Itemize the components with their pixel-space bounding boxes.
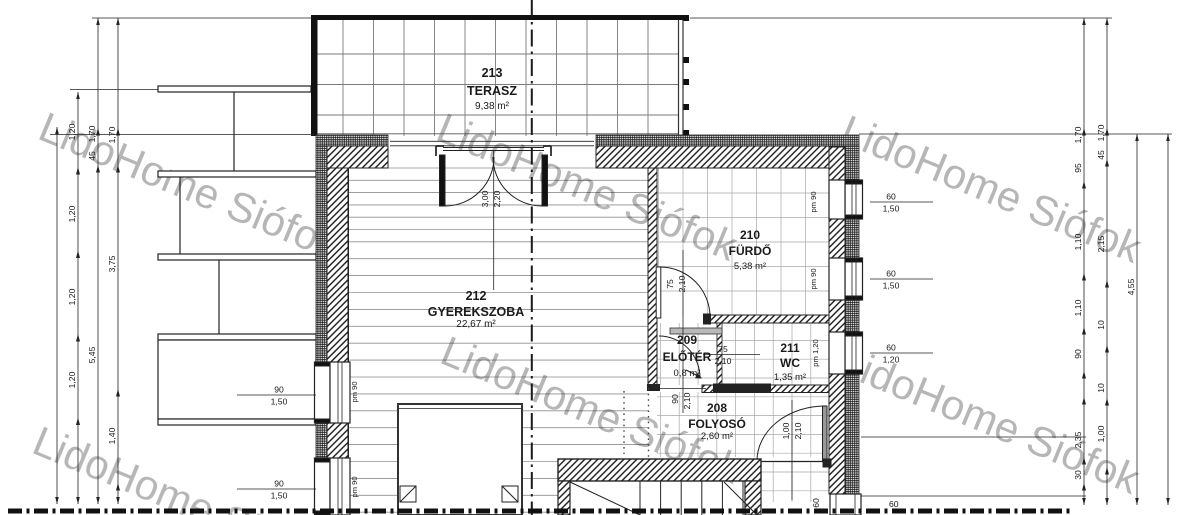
svg-text:90: 90 (1073, 349, 1083, 359)
svg-text:2,10: 2,10 (715, 356, 732, 366)
svg-text:2,10: 2,10 (677, 275, 687, 292)
svg-text:9,38 m²: 9,38 m² (475, 101, 510, 112)
svg-text:2,10: 2,10 (793, 422, 803, 439)
svg-text:1,20: 1,20 (883, 355, 900, 365)
svg-text:90: 90 (274, 479, 284, 489)
svg-text:209: 209 (677, 333, 697, 347)
svg-text:90: 90 (670, 394, 680, 404)
svg-text:TERASZ: TERASZ (467, 84, 517, 98)
svg-text:1,35 m²: 1,35 m² (774, 372, 806, 383)
svg-text:75: 75 (718, 344, 728, 354)
svg-text:1,70: 1,70 (1073, 126, 1083, 143)
svg-text:213: 213 (482, 66, 503, 80)
svg-text:1,70: 1,70 (107, 126, 117, 143)
svg-text:3,00: 3,00 (480, 190, 490, 207)
svg-text:1,00: 1,00 (781, 422, 791, 439)
svg-text:208: 208 (707, 401, 727, 415)
svg-text:1,50: 1,50 (271, 491, 288, 501)
svg-text:2,15: 2,15 (1096, 235, 1106, 252)
svg-text:FÜRDŐ: FÜRDŐ (729, 243, 772, 258)
svg-text:45: 45 (1096, 150, 1106, 160)
svg-text:2,10: 2,10 (682, 392, 692, 409)
svg-text:1,50: 1,50 (271, 397, 288, 407)
svg-text:1,10: 1,10 (1073, 299, 1083, 316)
svg-text:1,70: 1,70 (87, 125, 97, 142)
svg-text:3,75: 3,75 (107, 255, 117, 272)
svg-text:4,55: 4,55 (1126, 278, 1136, 295)
svg-text:1,20: 1,20 (67, 371, 77, 388)
svg-text:pm 90: pm 90 (809, 268, 818, 289)
svg-text:5,38 m²: 5,38 m² (734, 261, 766, 272)
svg-text:60: 60 (889, 499, 899, 509)
svg-text:1,50: 1,50 (883, 281, 900, 291)
svg-text:10: 10 (1096, 320, 1106, 330)
svg-text:1,50: 1,50 (883, 204, 900, 214)
svg-text:90: 90 (274, 385, 284, 395)
svg-text:75: 75 (665, 279, 675, 289)
svg-text:212: 212 (466, 289, 487, 303)
svg-text:2,35: 2,35 (1073, 431, 1083, 448)
svg-text:95: 95 (1073, 163, 1083, 173)
svg-text:30: 30 (1073, 470, 1083, 480)
svg-text:pm 90: pm 90 (350, 381, 359, 402)
svg-text:60: 60 (886, 192, 896, 202)
svg-text:pm 90: pm 90 (809, 191, 818, 212)
svg-text:10: 10 (1096, 383, 1106, 393)
svg-text:ELŐTÉR: ELŐTÉR (663, 349, 712, 364)
svg-text:1,10: 1,10 (1073, 233, 1083, 250)
svg-text:pm 1,20: pm 1,20 (811, 339, 820, 366)
svg-text:1,40: 1,40 (107, 427, 117, 444)
svg-text:1,20: 1,20 (67, 123, 77, 140)
svg-text:1,70: 1,70 (1096, 124, 1106, 141)
svg-text:FOLYOSÓ: FOLYOSÓ (688, 416, 746, 431)
svg-text:1,20: 1,20 (67, 205, 77, 222)
svg-text:60: 60 (811, 498, 821, 508)
svg-text:2,60 m²: 2,60 m² (701, 431, 733, 442)
svg-text:0,8 m²: 0,8 m² (674, 368, 701, 379)
svg-text:211: 211 (780, 341, 800, 355)
svg-text:60: 60 (886, 269, 896, 279)
svg-text:1,20: 1,20 (67, 288, 77, 305)
svg-text:60: 60 (886, 343, 896, 353)
svg-text:210: 210 (740, 228, 760, 242)
svg-text:pm 90: pm 90 (350, 476, 359, 497)
svg-text:GYEREKSZOBA: GYEREKSZOBA (428, 305, 525, 319)
svg-text:5,45: 5,45 (87, 346, 97, 363)
svg-text:45: 45 (87, 151, 97, 161)
svg-text:WC: WC (780, 356, 800, 370)
svg-text:1,00: 1,00 (1096, 425, 1106, 442)
svg-text:22,67 m²: 22,67 m² (456, 319, 496, 330)
